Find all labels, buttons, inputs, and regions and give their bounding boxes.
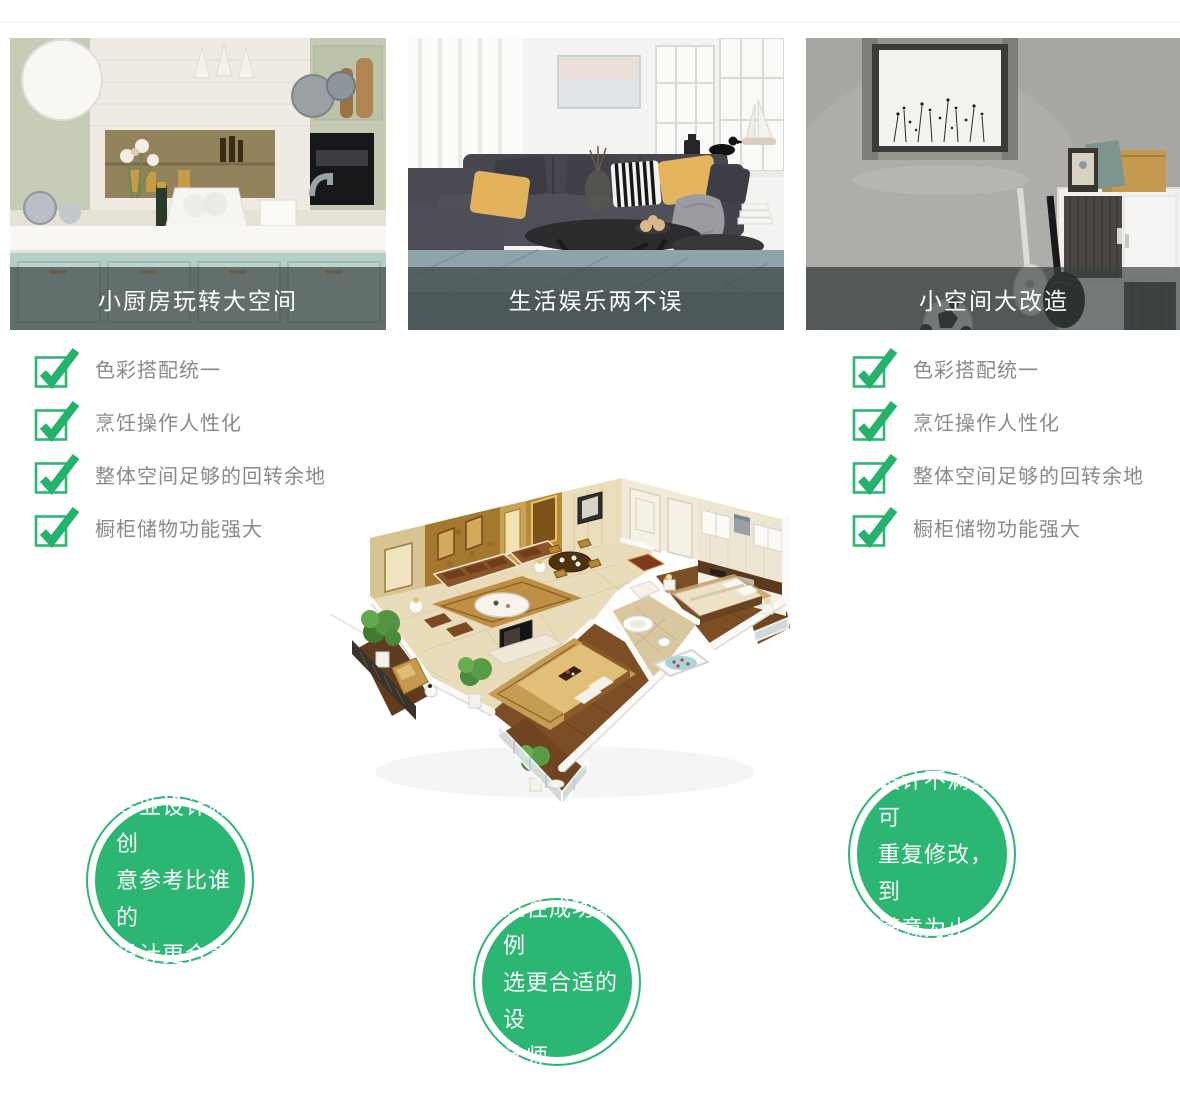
showcase-card-kitchen[interactable]: 小厨房玩转大空间	[10, 38, 386, 330]
checklist-label: 整体空间足够的回转余地	[913, 460, 1144, 489]
checklist-label: 烹饪操作人性化	[913, 407, 1060, 436]
bubble-line: 设计更合意	[116, 936, 245, 973]
feature-checklist-right: 色彩搭配统一 烹饪操作人性化 整体空间足够的回转余地 橱柜储物功能强大	[852, 347, 1180, 559]
bubble-line: 专业设计师创	[116, 788, 245, 862]
section-divider	[0, 22, 1180, 23]
checklist-label: 橱柜储物功能强大	[913, 513, 1081, 542]
checklist-label: 色彩搭配统一	[95, 354, 221, 383]
feature-checklist-left: 色彩搭配统一 烹饪操作人性化 整体空间足够的回转余地 橱柜储物功能强大	[34, 347, 364, 559]
showcase-card-small-space[interactable]: 小空间大改造	[806, 38, 1180, 330]
card-caption: 小空间大改造	[919, 282, 1069, 316]
floorplan-3d-rendering	[330, 472, 790, 817]
bubble-line: 过往成功案例	[503, 890, 632, 964]
card-caption-bar: 小空间大改造	[806, 267, 1180, 330]
bubble-line: 满意为止	[878, 910, 1007, 947]
check-icon	[852, 453, 898, 495]
check-icon	[852, 400, 898, 442]
card-caption-bar: 小厨房玩转大空间	[10, 267, 386, 330]
card-caption: 生活娱乐两不误	[509, 282, 684, 316]
bubble-line: 设计不满意可	[878, 762, 1007, 836]
checklist-item: 色彩搭配统一	[34, 347, 364, 389]
page: 小厨房玩转大空间	[0, 0, 1180, 1095]
checklist-item: 橱柜储物功能强大	[852, 506, 1180, 548]
checklist-item: 整体空间足够的回转余地	[34, 453, 364, 495]
checklist-label: 整体空间足够的回转余地	[95, 460, 326, 489]
showcase-card-living-room[interactable]: 生活娱乐两不误	[408, 38, 784, 330]
card-caption: 小厨房玩转大空间	[98, 282, 298, 316]
bubble-line: 选更合适的设	[503, 964, 632, 1038]
checklist-item: 色彩搭配统一	[852, 347, 1180, 389]
benefit-bubble-designers: 专业设计师创 意参考比谁的 设计更合意	[88, 798, 252, 962]
checklist-item: 烹饪操作人性化	[34, 400, 364, 442]
bubble-line: 意参考比谁的	[116, 862, 245, 936]
check-icon	[34, 347, 80, 389]
check-icon	[852, 347, 898, 389]
bubble-line: 计师	[503, 1038, 632, 1075]
checklist-item: 整体空间足够的回转余地	[852, 453, 1180, 495]
checklist-label: 烹饪操作人性化	[95, 407, 242, 436]
check-icon	[34, 453, 80, 495]
check-icon	[852, 506, 898, 548]
check-icon	[34, 400, 80, 442]
check-icon	[34, 506, 80, 548]
benefit-bubble-cases: 过往成功案例 选更合适的设 计师	[475, 900, 639, 1064]
checklist-label: 色彩搭配统一	[913, 354, 1039, 383]
benefit-bubble-revisions: 设计不满意可 重复修改，到 满意为止	[850, 772, 1014, 936]
checklist-label: 橱柜储物功能强大	[95, 513, 263, 542]
checklist-item: 橱柜储物功能强大	[34, 506, 364, 548]
card-caption-bar: 生活娱乐两不误	[408, 267, 784, 330]
bubble-line: 重复修改，到	[878, 836, 1007, 910]
checklist-item: 烹饪操作人性化	[852, 400, 1180, 442]
isometric-apartment-image	[330, 472, 790, 817]
